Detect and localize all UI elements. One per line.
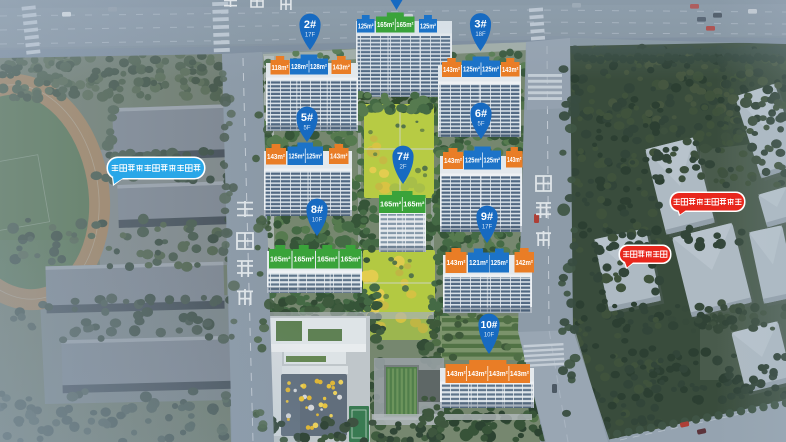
svg-text:143m²: 143m² <box>510 369 530 378</box>
svg-text:18F: 18F <box>475 32 486 38</box>
svg-text:10F: 10F <box>484 333 495 339</box>
svg-text:128m²: 128m² <box>310 62 327 71</box>
svg-text:125m²: 125m² <box>465 156 482 165</box>
svg-text:125m²: 125m² <box>420 21 436 30</box>
svg-text:165m²: 165m² <box>317 254 338 263</box>
svg-text:165m²: 165m² <box>403 200 425 209</box>
svg-text:143m²: 143m² <box>267 152 285 161</box>
svg-text:143m²: 143m² <box>502 65 519 74</box>
svg-text:142m²: 142m² <box>515 258 533 267</box>
svg-text:165m²: 165m² <box>294 254 315 263</box>
svg-text:125m²: 125m² <box>306 151 322 160</box>
svg-text:143m²: 143m² <box>444 156 462 165</box>
svg-text:118m²: 118m² <box>272 63 289 72</box>
svg-text:10#: 10# <box>481 320 498 331</box>
svg-text:5F: 5F <box>303 126 310 132</box>
svg-text:143m²: 143m² <box>468 369 488 378</box>
svg-text:165m²: 165m² <box>377 20 395 29</box>
svg-text:143m²: 143m² <box>332 63 350 72</box>
svg-text:125m²: 125m² <box>490 258 508 267</box>
svg-text:17F: 17F <box>305 33 316 39</box>
svg-text:17F: 17F <box>482 225 493 231</box>
svg-text:6#: 6# <box>475 108 487 120</box>
svg-text:165m²: 165m² <box>341 254 361 263</box>
svg-text:7#: 7# <box>397 151 409 163</box>
svg-text:143m²: 143m² <box>507 155 522 164</box>
svg-text:143m²: 143m² <box>447 369 467 378</box>
svg-text:125m²: 125m² <box>358 21 374 30</box>
svg-text:10F: 10F <box>312 218 323 224</box>
svg-text:128m²: 128m² <box>291 62 308 71</box>
svg-text:8#: 8# <box>311 204 323 216</box>
svg-text:143m²: 143m² <box>447 258 466 267</box>
svg-text:3#: 3# <box>474 18 486 30</box>
svg-text:125m²: 125m² <box>482 65 499 74</box>
svg-text:125m²: 125m² <box>484 156 501 165</box>
svg-text:121m²: 121m² <box>469 258 488 267</box>
svg-text:125m²: 125m² <box>289 151 305 160</box>
svg-text:165m²: 165m² <box>270 254 291 263</box>
svg-text:9#: 9# <box>481 211 493 223</box>
svg-text:5#: 5# <box>301 112 313 124</box>
svg-text:143m²: 143m² <box>443 65 460 74</box>
svg-text:2#: 2# <box>304 19 316 31</box>
svg-text:165m²: 165m² <box>380 200 402 209</box>
svg-text:2F: 2F <box>399 165 406 171</box>
svg-text:125m²: 125m² <box>463 65 480 74</box>
svg-text:165m²: 165m² <box>396 20 414 29</box>
svg-text:143m²: 143m² <box>330 152 348 161</box>
svg-text:143m²: 143m² <box>489 369 509 378</box>
svg-text:5F: 5F <box>477 122 484 128</box>
